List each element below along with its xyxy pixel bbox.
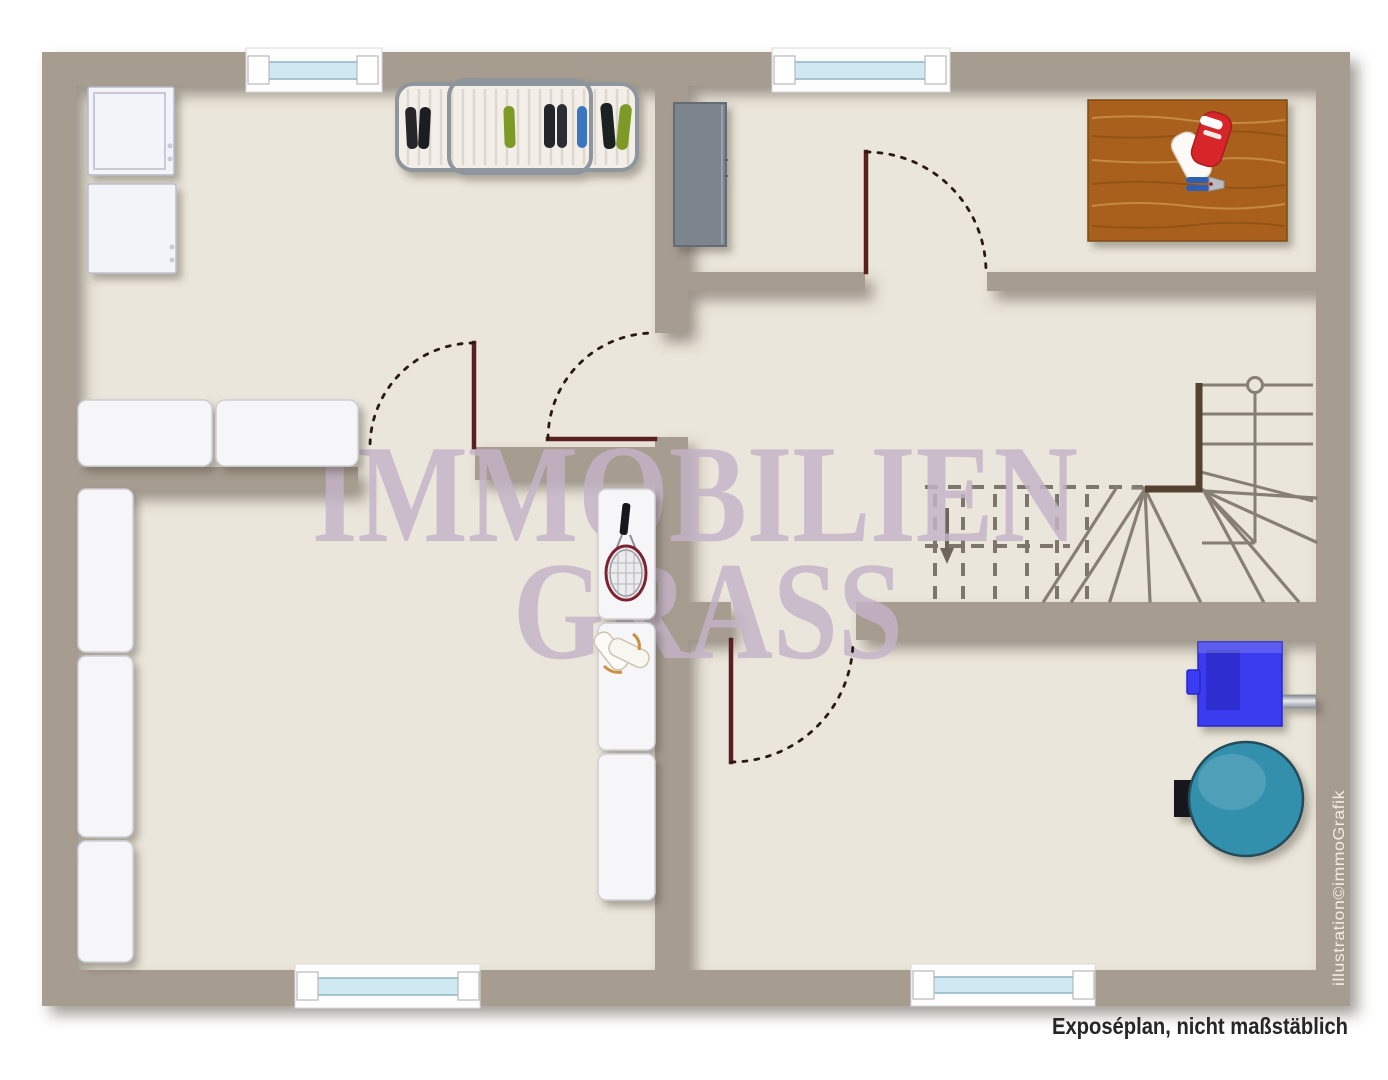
floorplan-page: IMMOBILIEN GRASS [0, 0, 1388, 1080]
railing-newel-post [1248, 378, 1263, 393]
window-handle [297, 972, 318, 1000]
window-bottom-left [295, 964, 480, 1008]
window-glass [778, 62, 944, 79]
watermark-line2: GRASS [513, 534, 903, 689]
wall-workshop-b [987, 272, 1316, 291]
washing-machine-icon [88, 87, 174, 175]
shoe [418, 107, 431, 150]
workbench-icon [1088, 100, 1287, 241]
shelf-unit [598, 754, 655, 900]
window-handle [774, 56, 795, 84]
outer-wall-bottom [42, 970, 1350, 1006]
shoe [557, 104, 567, 148]
shoe-rack-icon [397, 80, 637, 173]
pliers-joint [1209, 182, 1213, 186]
pliers-handle [1186, 177, 1209, 183]
outer-wall-top [42, 52, 1350, 86]
window-handle [248, 56, 269, 84]
shelf-unit [78, 841, 133, 962]
washer-body [88, 87, 174, 175]
washer-knob [168, 144, 173, 149]
storage-box [216, 400, 358, 466]
wall-workshop-a [688, 272, 865, 291]
dryer-knob [170, 258, 175, 263]
caption-text: Exposéplan, nicht maßstäblich [1052, 1013, 1348, 1039]
shoe [544, 104, 555, 148]
window-glass [917, 977, 1089, 993]
furnace-highlight [1198, 642, 1282, 653]
floor-plan-svg: IMMOBILIEN GRASS [0, 0, 1388, 1080]
washer-knob [168, 157, 173, 162]
window-glass [301, 978, 474, 995]
pliers-handle [1186, 185, 1209, 191]
shoe [405, 107, 418, 150]
shelf-column-center [591, 489, 655, 900]
furnace-pipe [1282, 695, 1316, 708]
shelf-unit [78, 656, 133, 837]
tank-highlight [1198, 754, 1266, 810]
wall-hall-bottom-b [856, 602, 1316, 640]
shelf-unit [78, 489, 133, 652]
dryer-body [88, 184, 176, 273]
cabinet-body [674, 103, 726, 246]
shoe [503, 106, 515, 148]
shoe-rack-slats [408, 89, 628, 165]
window-handle [913, 971, 934, 999]
dryer-knob [170, 245, 175, 250]
shelf-column-left [78, 489, 133, 962]
outer-wall-left [42, 52, 76, 1006]
storage-boxes-icon [78, 400, 358, 466]
window-handle [458, 972, 479, 1000]
furnace-panel [1206, 650, 1240, 710]
window-handle [1073, 971, 1094, 999]
window-handle [357, 56, 378, 84]
shoe [577, 106, 587, 148]
window-top-left [246, 48, 382, 92]
credit-text: illustration©immoGrafik [1331, 789, 1348, 986]
window-bottom-right [911, 964, 1095, 1006]
dryer-icon [88, 184, 176, 273]
window-handle [925, 56, 946, 84]
furnace-tab [1187, 670, 1200, 694]
storage-cabinet-icon [674, 103, 728, 246]
window-top-right [772, 48, 950, 92]
storage-box [78, 400, 212, 466]
